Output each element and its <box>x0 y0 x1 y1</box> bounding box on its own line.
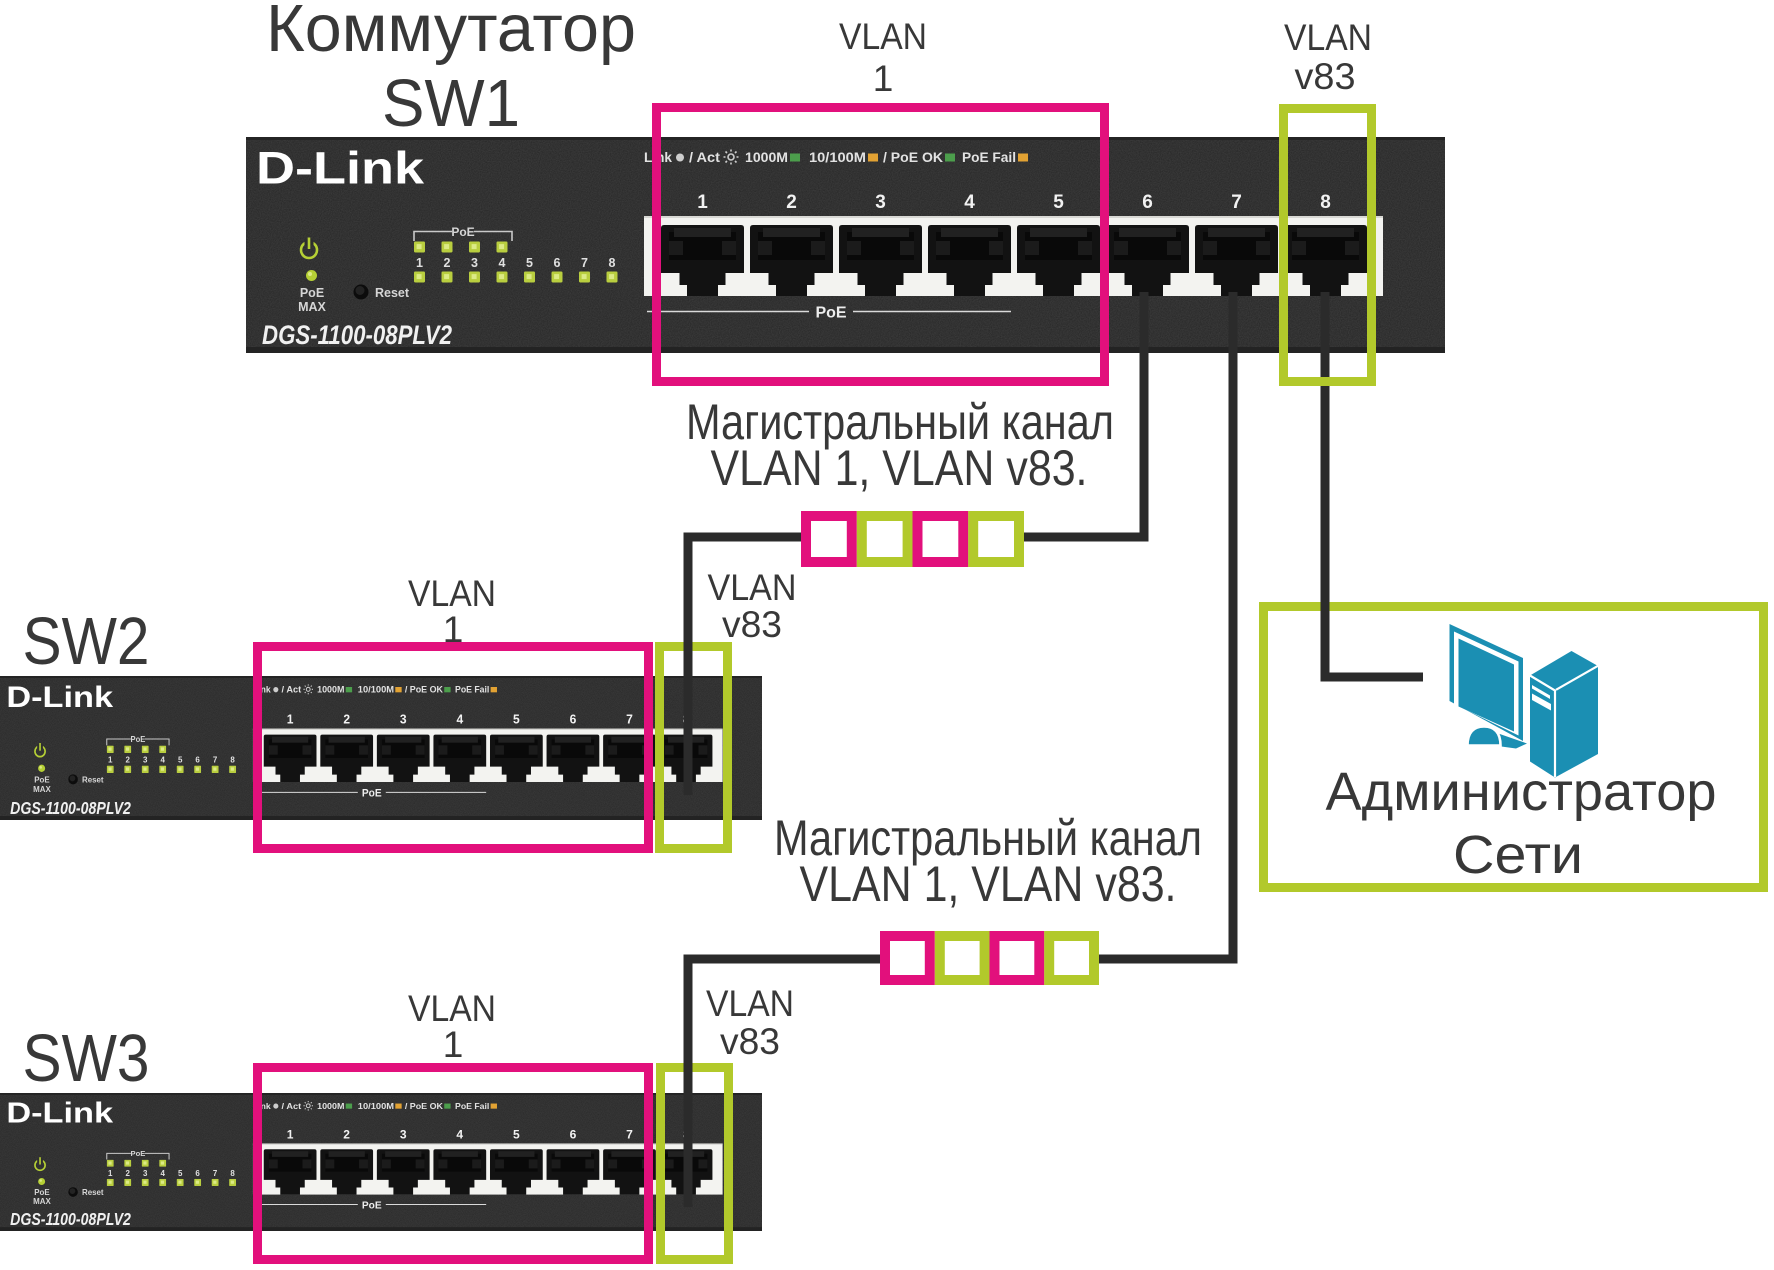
svg-text:1: 1 <box>873 58 894 99</box>
svg-text:VLAN: VLAN <box>408 573 496 614</box>
svg-text:SW2: SW2 <box>23 604 150 679</box>
svg-text:VLAN: VLAN <box>706 983 794 1024</box>
svg-text:VLAN 1, VLAN v83.: VLAN 1, VLAN v83. <box>711 440 1088 496</box>
svg-text:v83: v83 <box>1295 56 1356 97</box>
svg-text:1: 1 <box>443 1024 464 1065</box>
svg-text:VLAN: VLAN <box>708 567 797 608</box>
svg-text:SW3: SW3 <box>23 1021 150 1096</box>
svg-text:v83: v83 <box>722 604 782 645</box>
svg-text:SW1: SW1 <box>382 66 520 141</box>
svg-text:Сети: Сети <box>1453 825 1583 885</box>
svg-text:VLAN: VLAN <box>839 16 927 57</box>
svg-text:1: 1 <box>443 609 464 650</box>
svg-text:Коммутатор: Коммутатор <box>266 0 636 66</box>
svg-text:VLAN: VLAN <box>1284 17 1372 58</box>
svg-text:VLAN 1, VLAN v83.: VLAN 1, VLAN v83. <box>800 856 1177 912</box>
svg-text:VLAN: VLAN <box>408 988 496 1029</box>
svg-text:v83: v83 <box>720 1021 780 1062</box>
svg-text:Администратор: Администратор <box>1326 762 1717 822</box>
